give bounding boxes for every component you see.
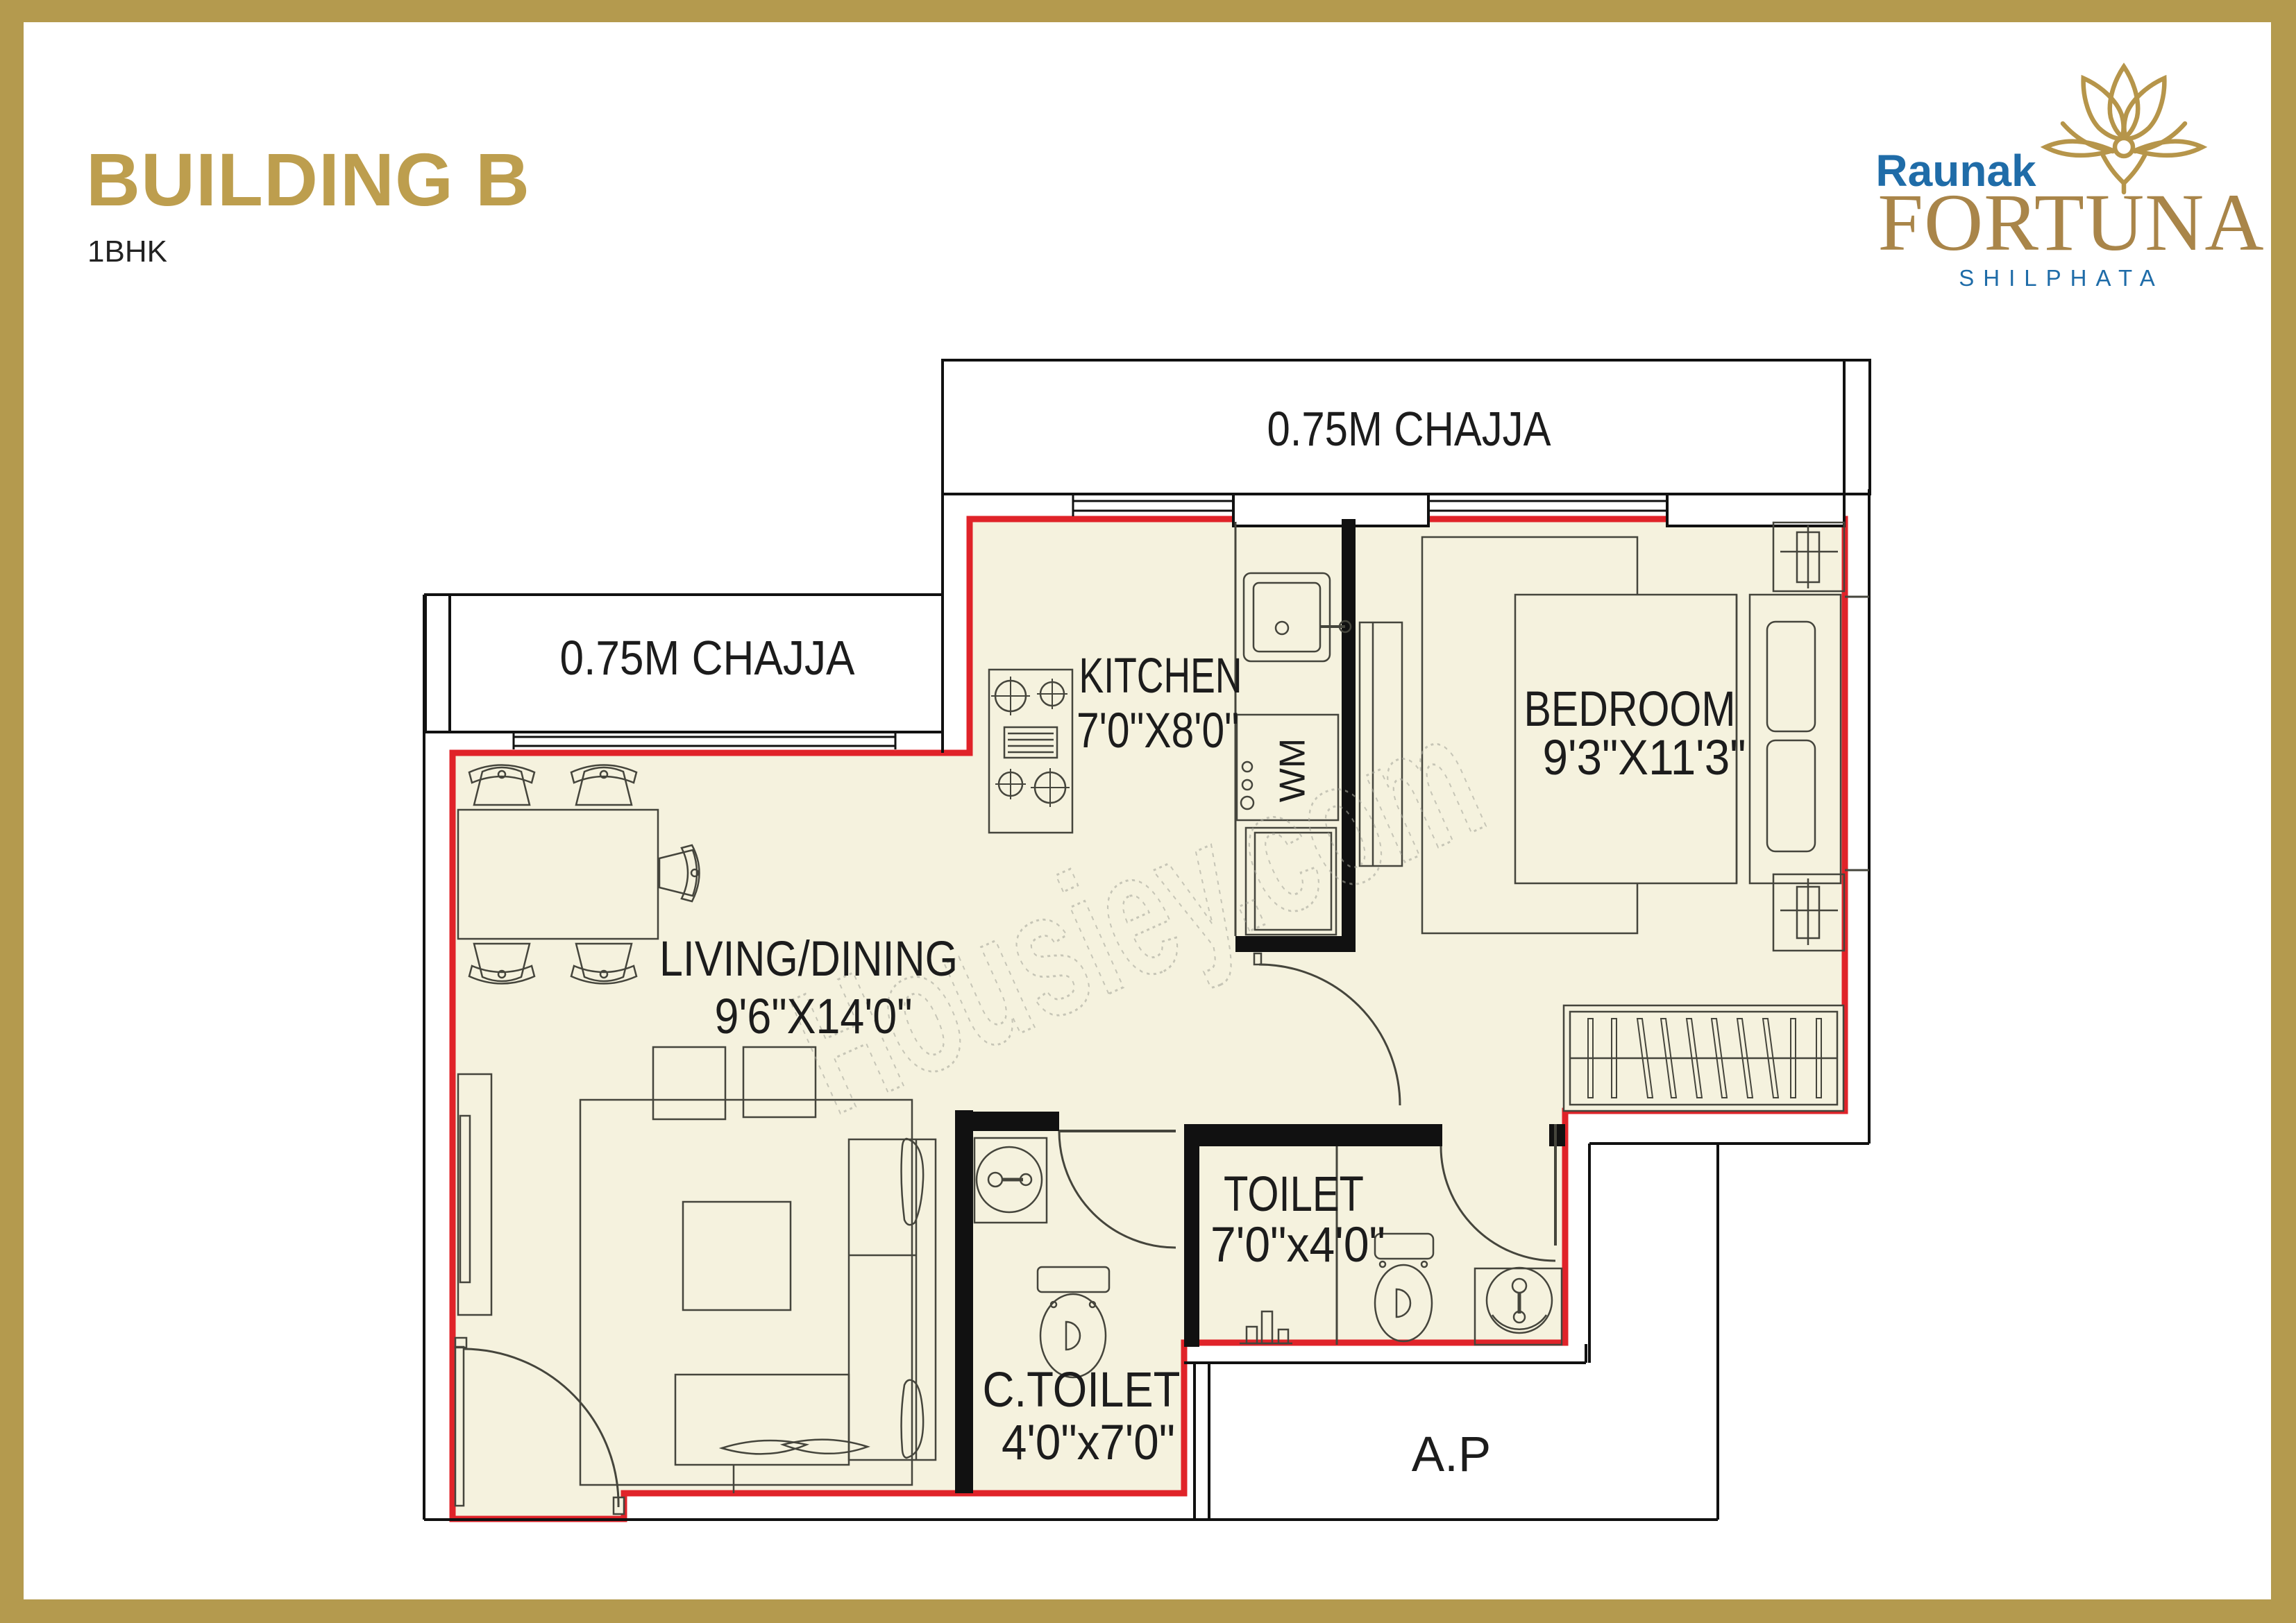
svg-text:9'6"X14'0": 9'6"X14'0"	[715, 989, 913, 1044]
svg-text:0.75M CHAJJA: 0.75M CHAJJA	[1267, 402, 1551, 456]
svg-text:0.75M CHAJJA: 0.75M CHAJJA	[560, 631, 855, 685]
svg-text:C.TOILET: C.TOILET	[983, 1363, 1181, 1418]
svg-text:BUILDING B: BUILDING B	[86, 137, 530, 221]
svg-text:7'0"X8'0": 7'0"X8'0"	[1077, 704, 1239, 758]
svg-text:TOILET: TOILET	[1224, 1167, 1364, 1222]
svg-text:FORTUNA: FORTUNA	[1877, 177, 2264, 268]
svg-text:A.P: A.P	[1412, 1427, 1491, 1482]
svg-text:LIVING/DINING: LIVING/DINING	[659, 932, 958, 987]
svg-text:BEDROOM: BEDROOM	[1524, 682, 1736, 737]
svg-text:1BHK: 1BHK	[87, 235, 167, 269]
svg-text:7'0"x4'0": 7'0"x4'0"	[1210, 1218, 1385, 1273]
svg-text:4'0"x7'0": 4'0"x7'0"	[1002, 1416, 1175, 1470]
svg-text:SHILPHATA: SHILPHATA	[1959, 265, 2164, 291]
svg-text:9'3"X11'3": 9'3"X11'3"	[1543, 731, 1746, 785]
svg-text:KITCHEN: KITCHEN	[1079, 649, 1242, 704]
